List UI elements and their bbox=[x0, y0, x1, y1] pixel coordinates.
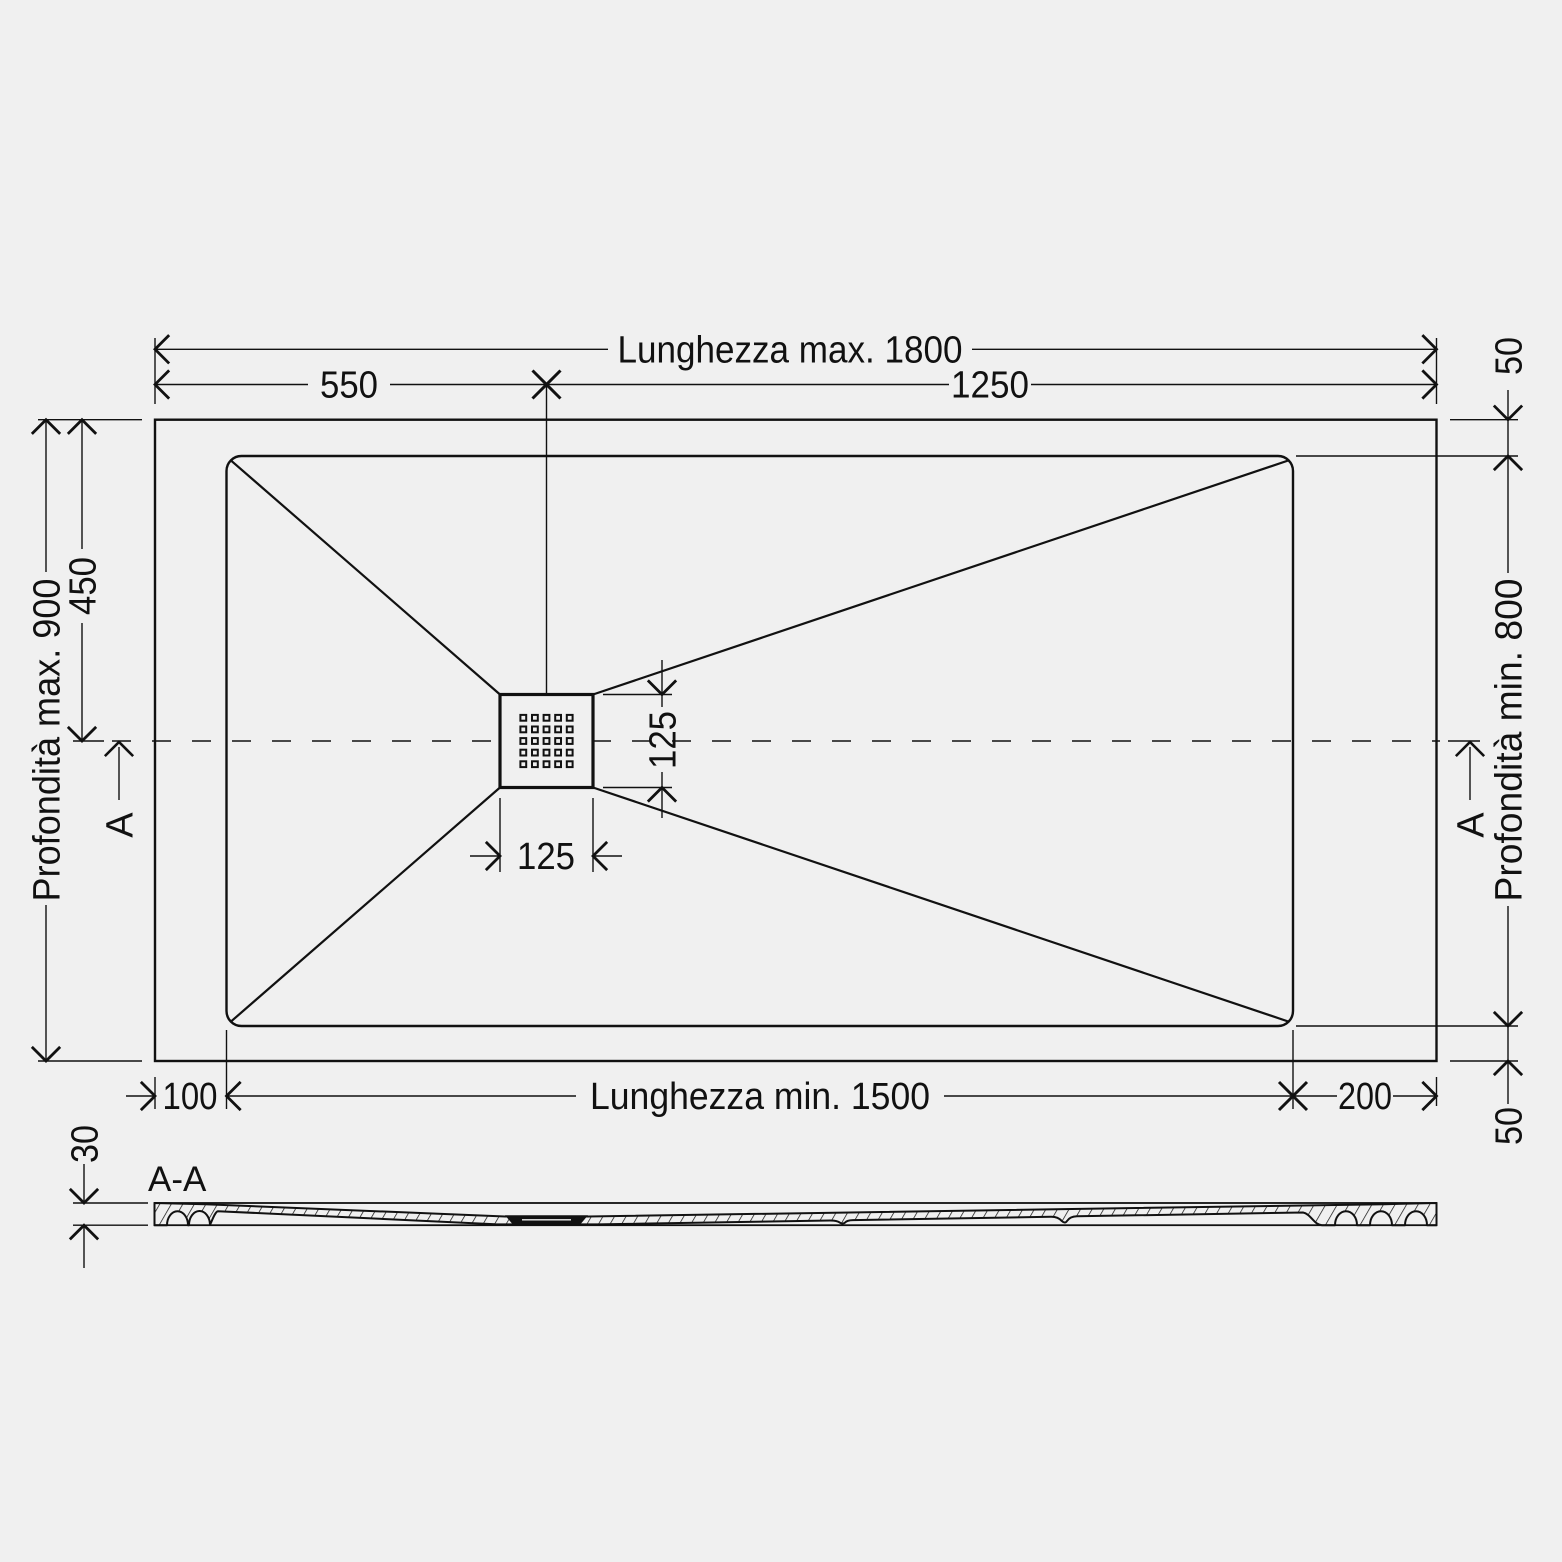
svg-text:A-A: A-A bbox=[148, 1160, 207, 1199]
svg-text:A: A bbox=[100, 812, 142, 838]
svg-text:1250: 1250 bbox=[951, 365, 1029, 407]
svg-text:Profondità min. 800: Profondità min. 800 bbox=[1489, 579, 1531, 902]
svg-text:125: 125 bbox=[517, 836, 575, 878]
svg-text:A: A bbox=[1451, 812, 1493, 838]
svg-text:125: 125 bbox=[643, 711, 685, 769]
svg-text:50: 50 bbox=[1489, 1107, 1531, 1145]
svg-text:30: 30 bbox=[65, 1125, 107, 1163]
svg-text:550: 550 bbox=[320, 365, 378, 407]
svg-text:Lunghezza min. 1500: Lunghezza min. 1500 bbox=[590, 1076, 930, 1118]
svg-text:Profondità max. 900: Profondità max. 900 bbox=[27, 579, 69, 902]
svg-text:200: 200 bbox=[1338, 1076, 1392, 1118]
svg-text:Lunghezza max. 1800: Lunghezza max. 1800 bbox=[618, 329, 963, 371]
svg-text:50: 50 bbox=[1489, 337, 1531, 375]
svg-text:450: 450 bbox=[63, 557, 105, 615]
svg-text:100: 100 bbox=[163, 1076, 218, 1118]
